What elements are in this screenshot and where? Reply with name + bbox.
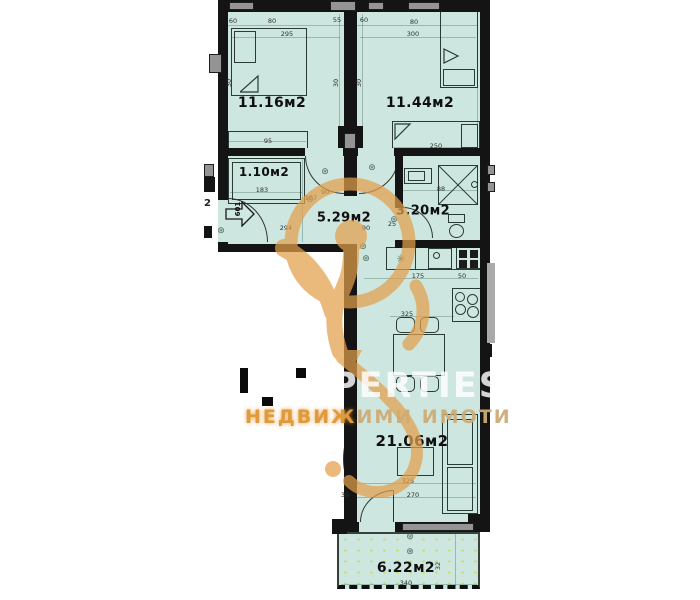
toilet-tank [448, 214, 465, 223]
neighbor-wall [204, 226, 212, 238]
burner [459, 250, 467, 258]
watermark-brand-text: PERTIES [331, 366, 506, 406]
toilet-bowl [449, 224, 464, 238]
watermark-letter-fragment [296, 368, 306, 378]
fridge-icon: ✳ [396, 253, 405, 266]
neighbor-slab [487, 263, 495, 343]
light-fixture-icon: ⊛ [406, 532, 414, 542]
coffee-table [397, 447, 434, 476]
dimension-label: 300 [407, 30, 419, 38]
balcony-door-opening [359, 522, 395, 532]
window [330, 1, 356, 11]
light-fixture-icon: ⊛ [368, 163, 376, 173]
dimension-label: 30 [355, 79, 363, 87]
light-fixture-icon: ⊛ [306, 195, 314, 205]
wardrobe-drawer [443, 69, 475, 86]
dimension-label: 250 [430, 142, 442, 150]
window [487, 165, 495, 175]
sofa-cushion [447, 467, 473, 511]
terrace-window [402, 523, 474, 531]
neighbor-window [204, 164, 214, 177]
hob-ring [467, 294, 478, 305]
window [229, 2, 254, 10]
light-fixture-icon: ⊛ [217, 226, 225, 236]
dimension-label: 325 [401, 310, 413, 318]
light-fixture-icon: ⊛ [390, 215, 398, 225]
dimension-label: 294 [280, 224, 292, 232]
hob-ring [455, 292, 465, 302]
room-area-label: 1.10м2 [239, 165, 289, 179]
blanket-fold-icon [394, 123, 412, 141]
wall [395, 156, 403, 210]
bathroom-sink-basin [408, 171, 425, 181]
wall [395, 240, 481, 248]
chair [420, 317, 439, 333]
room-area-label: 3.20м2 [396, 204, 450, 219]
room-area-label: 21.06м2 [376, 432, 449, 450]
dimension-label: 60 [229, 17, 237, 25]
watermark-subtitle-right: ИМИ ИМОТИ [356, 406, 511, 428]
neighbor-wall [204, 177, 215, 192]
door-opening [358, 148, 394, 156]
dimension-label: 88 [437, 185, 445, 193]
dimension-label: 80 [410, 18, 418, 26]
pillow [234, 31, 256, 63]
watermark-subtitle: НЕДВИЖИМИ ИМОТИ [245, 406, 512, 428]
dimension-label: 90 [321, 188, 329, 196]
dimension-label: 80 [268, 17, 276, 25]
pillow [461, 124, 478, 148]
wall [218, 244, 357, 252]
balcony-door-leaf [393, 490, 394, 524]
burner [470, 250, 478, 258]
window [408, 2, 440, 10]
wall-corner [332, 519, 347, 534]
burner [470, 260, 478, 268]
dimension-label: 32 [434, 562, 442, 570]
burner [459, 260, 467, 268]
shaft-window [344, 133, 356, 149]
room-area-label: 11.16м2 [238, 95, 306, 111]
wardrobe-fold-icon [443, 48, 460, 65]
dimension-label: 340 [400, 579, 412, 587]
dimension-label: 90 [362, 224, 370, 232]
wall-stub [480, 344, 492, 357]
apartment-number: 601 [234, 200, 242, 218]
hob-ring [467, 306, 479, 318]
room-area-label: 11.44м2 [386, 95, 454, 111]
shower-drain-icon [471, 181, 478, 188]
chair [396, 317, 415, 333]
kitchen-sink [428, 248, 452, 269]
wall [344, 148, 357, 196]
watermark-subtitle-left: НЕДВИЖ [245, 406, 356, 428]
dimension-label: 30 [332, 79, 340, 87]
dimension-label: 175 [412, 272, 424, 280]
window [368, 2, 384, 10]
dimension-label: 55 [333, 16, 341, 24]
watermark-letter-fragment [262, 397, 273, 406]
wall [344, 0, 357, 132]
watermark-letter-fragment [240, 368, 248, 393]
dimension-label: 60 [360, 16, 368, 24]
hob-ring [455, 304, 466, 315]
light-fixture-icon: ⊛ [406, 547, 414, 557]
light-fixture-icon: ⊛ [321, 167, 329, 177]
floor-plan-image: ✳ [0, 0, 700, 600]
dimension-label: 30 [225, 79, 233, 87]
light-fixture-icon: ⊛ [359, 242, 367, 252]
dimension-label: 39 [341, 491, 349, 499]
dimension-label: 295 [281, 30, 293, 38]
dimension-label: 95 [264, 137, 272, 145]
blanket-fold-icon [240, 74, 260, 94]
door-opening [305, 148, 343, 156]
room-area-label: 6.22м2 [377, 560, 435, 576]
dimension-label: 325 [402, 477, 414, 485]
dimension-label: 183 [256, 186, 268, 194]
adjacent-area-fragment: 2 [204, 198, 211, 209]
window [487, 182, 495, 192]
dimension-label: 270 [407, 491, 419, 499]
light-fixture-icon: ⊛ [362, 254, 370, 264]
dimension-label: 50 [458, 272, 466, 280]
kitchen-sink-faucet [433, 252, 440, 259]
window [209, 54, 222, 73]
dimension-line [455, 534, 456, 586]
